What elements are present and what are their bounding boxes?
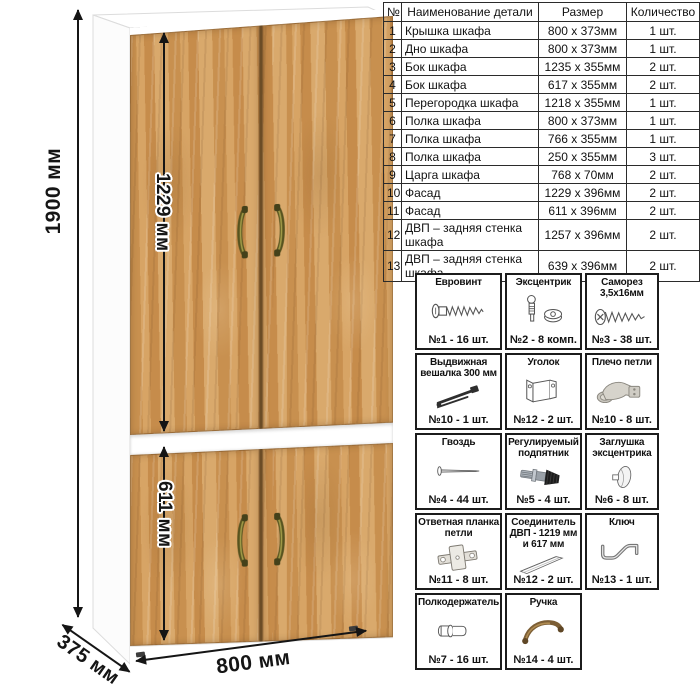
parts-cell-num: 4 xyxy=(384,76,402,94)
parts-cell-num: 11 xyxy=(384,202,402,220)
corner-bracket-icon xyxy=(508,368,579,414)
hardware-item: Гвоздь№4 - 44 шт. xyxy=(415,433,502,510)
parts-cell-qty: 1 шт. xyxy=(627,94,700,112)
dimension-arrow-height xyxy=(77,10,79,617)
hardware-item-title: Выдвижная вешалка 300 мм xyxy=(418,357,499,379)
door-handle-icon xyxy=(235,513,249,568)
parts-table-body: 1Крышка шкафа800 х 373мм1 шт.2Дно шкафа8… xyxy=(384,22,700,282)
hardware-item-count: №10 - 8 шт. xyxy=(592,414,652,426)
hardware-item: Полкодержатель№7 - 16 шт. xyxy=(415,593,502,670)
hardware-item: Уголок№12 - 2 шт. xyxy=(505,353,582,430)
parts-cell-qty: 1 шт. xyxy=(627,22,700,40)
hardware-item-count: №12 - 2 шт. xyxy=(513,414,573,426)
hardware-item-count: №11 - 8 шт. xyxy=(429,574,489,586)
parts-cell-name: ДВП – задняя стенка шкафа xyxy=(402,220,539,251)
lower-right-door xyxy=(262,443,393,642)
parts-cell-name: Полка шкафа xyxy=(402,148,539,166)
hinge-arm-icon xyxy=(588,368,656,414)
hardware-item-title: Полкодержатель xyxy=(418,597,499,608)
upper-right-door xyxy=(262,16,393,429)
parts-cell-num: 3 xyxy=(384,58,402,76)
hardware-item: Регулируемый подпятник№5 - 4 шт. xyxy=(505,433,582,510)
hardware-item-title: Плечо петли xyxy=(592,357,652,368)
parts-cell-size: 1218 х 355мм xyxy=(539,94,627,112)
self-tapping-screw-icon xyxy=(588,299,656,334)
upper-left-door xyxy=(130,26,259,435)
parts-cell-num: 2 xyxy=(384,40,402,58)
parts-cell-num: 5 xyxy=(384,94,402,112)
dimension-label-height: 1900 мм xyxy=(42,148,66,234)
hardware-item-title: Эксцентрик xyxy=(516,277,571,288)
parts-cell-num: 6 xyxy=(384,112,402,130)
hardware-item: Плечо петли№10 - 8 шт. xyxy=(585,353,659,430)
parts-cell-qty: 2 шт. xyxy=(627,166,700,184)
wardrobe-front xyxy=(130,9,393,665)
parts-cell-size: 800 х 373мм xyxy=(539,40,627,58)
parts-table-row: 2Дно шкафа800 х 373мм1 шт. xyxy=(384,40,700,58)
hardware-item-count: №14 - 4 шт. xyxy=(513,654,573,666)
parts-cell-size: 1257 х 396мм xyxy=(539,220,627,251)
hardware-item: Соединитель ДВП - 1219 мм и 617 мм№12 - … xyxy=(505,513,582,590)
parts-table-row: 7Полка шкафа766 х 355мм1 шт. xyxy=(384,130,700,148)
header-name: Наименование детали xyxy=(402,3,539,22)
parts-cell-qty: 1 шт. xyxy=(627,112,700,130)
hardware-item-count: №7 - 16 шт. xyxy=(428,654,488,666)
hardware-item-title: Ключ xyxy=(609,517,635,528)
door-handle-icon xyxy=(272,202,286,257)
parts-cell-qty: 1 шт. xyxy=(627,40,700,58)
parts-cell-name: Дно шкафа xyxy=(402,40,539,58)
hinge-plate-icon xyxy=(418,539,499,574)
hardware-item-count: №4 - 44 шт. xyxy=(428,494,488,506)
parts-table-row: 12ДВП – задняя стенка шкафа1257 х 396мм2… xyxy=(384,220,700,251)
parts-cell-num: 7 xyxy=(384,130,402,148)
parts-cell-name: Полка шкафа xyxy=(402,130,539,148)
hardware-item-count: №3 - 38 шт. xyxy=(592,334,652,346)
header-qty: Количество xyxy=(627,3,700,22)
adjustable-foot-icon xyxy=(508,459,579,494)
parts-cell-num: 10 xyxy=(384,184,402,202)
parts-cell-name: Крышка шкафа xyxy=(402,22,539,40)
eurovint-screw-icon xyxy=(418,288,499,334)
parts-cell-name: Бок шкафа xyxy=(402,58,539,76)
bow-handle-icon xyxy=(508,608,579,654)
door-handle-icon xyxy=(235,205,249,260)
hardware-item: Евровинт№1 - 16 шт. xyxy=(415,273,502,350)
parts-cell-name: Бок шкафа xyxy=(402,76,539,94)
parts-table-row: 9Царга шкафа768 х 70мм2 шт. xyxy=(384,166,700,184)
parts-cell-size: 800 х 373мм xyxy=(539,22,627,40)
parts-table-row: 5Перегородка шкафа1218 х 355мм1 шт. xyxy=(384,94,700,112)
cam-cover-icon xyxy=(588,459,656,494)
hardware-item-title: Заглушка эксцентрика xyxy=(588,437,656,459)
parts-cell-qty: 2 шт. xyxy=(627,76,700,94)
parts-cell-size: 1235 х 355мм xyxy=(539,58,627,76)
parts-cell-qty: 2 шт. xyxy=(627,58,700,76)
hardware-item: Ответная планка петли№11 - 8 шт. xyxy=(415,513,502,590)
hardware-grid: Евровинт№1 - 16 шт.Эксцентрик№2 - 8 комп… xyxy=(415,273,659,670)
parts-table-row: 3Бок шкафа1235 х 355мм2 шт. xyxy=(384,58,700,76)
parts-table-row: 8Полка шкафа250 х 355мм3 шт. xyxy=(384,148,700,166)
parts-cell-name: Полка шкафа xyxy=(402,112,539,130)
parts-cell-size: 800 х 373мм xyxy=(539,112,627,130)
hardware-item: Выдвижная вешалка 300 мм№10 - 1 шт. xyxy=(415,353,502,430)
parts-cell-size: 1229 х 396мм xyxy=(539,184,627,202)
dimension-label-lower-door: 611 мм xyxy=(153,481,175,547)
hardware-item: Ручка№14 - 4 шт. xyxy=(505,593,582,670)
parts-cell-num: 1 xyxy=(384,22,402,40)
hex-key-icon xyxy=(588,528,656,574)
parts-cell-num: 9 xyxy=(384,166,402,184)
cam-lock-icon xyxy=(508,288,579,334)
hardware-item: Саморез 3,5х16мм№3 - 38 шт. xyxy=(585,273,659,350)
hardware-item: Заглушка эксцентрика№6 - 8 шт. xyxy=(585,433,659,510)
hardware-item-count: №1 - 16 шт. xyxy=(428,334,488,346)
hardware-item-count: №5 - 4 шт. xyxy=(516,494,570,506)
hardware-item-title: Саморез 3,5х16мм xyxy=(588,277,656,299)
hardware-item: Эксцентрик№2 - 8 комп. xyxy=(505,273,582,350)
hdf-connector-icon xyxy=(508,550,579,574)
parts-table-row: 10Фасад1229 х 396мм2 шт. xyxy=(384,184,700,202)
wardrobe-side-panel xyxy=(93,15,130,664)
parts-cell-qty: 1 шт. xyxy=(627,130,700,148)
door-handle-icon xyxy=(272,511,286,566)
parts-table-header-row: № Наименование детали Размер Количество xyxy=(384,3,700,22)
parts-cell-qty: 2 шт. xyxy=(627,184,700,202)
parts-table-row: 4Бок шкафа617 х 355мм2 шт. xyxy=(384,76,700,94)
parts-cell-size: 250 х 355мм xyxy=(539,148,627,166)
hardware-item-title: Ручка xyxy=(530,597,558,608)
hardware-item: Ключ№13 - 1 шт. xyxy=(585,513,659,590)
header-size: Размер xyxy=(539,3,627,22)
parts-cell-size: 617 х 355мм xyxy=(539,76,627,94)
hardware-item-title: Уголок xyxy=(527,357,559,368)
hardware-item-title: Гвоздь xyxy=(442,437,476,448)
parts-cell-qty: 2 шт. xyxy=(627,202,700,220)
lower-left-door xyxy=(130,449,259,646)
hardware-item-title: Евровинт xyxy=(435,277,482,288)
hardware-item-count: №6 - 8 шт. xyxy=(595,494,649,506)
parts-cell-name: Фасад xyxy=(402,202,539,220)
hardware-item-title: Ответная планка петли xyxy=(418,517,499,539)
hardware-item-count: №12 - 2 шт. xyxy=(513,574,573,586)
parts-cell-size: 768 х 70мм xyxy=(539,166,627,184)
parts-table-row: 1Крышка шкафа800 х 373мм1 шт. xyxy=(384,22,700,40)
dimension-label-upper-door: 1229 мм xyxy=(151,173,173,251)
parts-table-row: 11Фасад611 х 396мм2 шт. xyxy=(384,202,700,220)
parts-cell-num: 8 xyxy=(384,148,402,166)
hardware-item-count: №2 - 8 комп. xyxy=(510,334,577,346)
parts-cell-name: Перегородка шкафа xyxy=(402,94,539,112)
parts-cell-qty: 3 шт. xyxy=(627,148,700,166)
parts-cell-qty: 2 шт. xyxy=(627,220,700,251)
parts-cell-size: 766 х 355мм xyxy=(539,130,627,148)
parts-table-row: 6Полка шкафа800 х 373мм1 шт. xyxy=(384,112,700,130)
shelf-pin-icon xyxy=(418,608,499,654)
nail-icon xyxy=(418,448,499,494)
hardware-item-count: №10 - 1 шт. xyxy=(428,414,488,426)
hardware-item-count: №13 - 1 шт. xyxy=(592,574,652,586)
parts-table: № Наименование детали Размер Количество … xyxy=(383,2,700,282)
parts-cell-size: 611 х 396мм xyxy=(539,202,627,220)
header-num: № xyxy=(384,3,402,22)
parts-cell-num: 13 xyxy=(384,251,402,282)
hardware-item-title: Регулируемый подпятник xyxy=(508,437,579,459)
parts-cell-name: Фасад xyxy=(402,184,539,202)
parts-cell-num: 12 xyxy=(384,220,402,251)
pullout-hanger-icon xyxy=(418,379,499,414)
parts-cell-name: Царга шкафа xyxy=(402,166,539,184)
